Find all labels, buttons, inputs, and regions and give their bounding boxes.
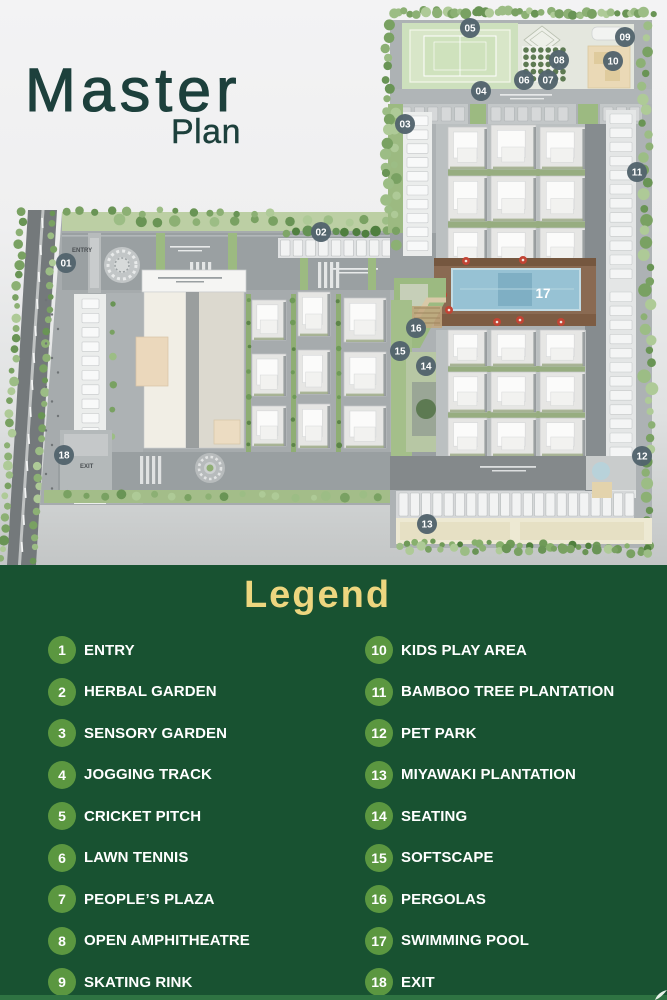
svg-text:09: 09: [619, 33, 631, 44]
svg-text:08: 08: [553, 56, 565, 67]
svg-text:EXIT: EXIT: [80, 464, 94, 470]
svg-text:01: 01: [60, 259, 72, 270]
svg-text:18: 18: [58, 451, 70, 462]
svg-text:13: 13: [421, 520, 433, 531]
svg-text:07: 07: [542, 76, 554, 87]
svg-text:16: 16: [410, 324, 422, 335]
svg-text:06: 06: [518, 76, 530, 87]
svg-text:15: 15: [394, 347, 406, 358]
svg-text:02: 02: [315, 228, 327, 239]
svg-text:05: 05: [464, 24, 476, 35]
svg-text:11: 11: [632, 168, 643, 179]
svg-text:04: 04: [475, 87, 487, 98]
svg-text:17: 17: [535, 286, 550, 301]
svg-text:12: 12: [636, 452, 648, 463]
svg-text:10: 10: [607, 57, 619, 68]
svg-text:14: 14: [420, 362, 432, 373]
svg-text:03: 03: [399, 120, 411, 131]
svg-text:ENTRY: ENTRY: [72, 248, 92, 254]
